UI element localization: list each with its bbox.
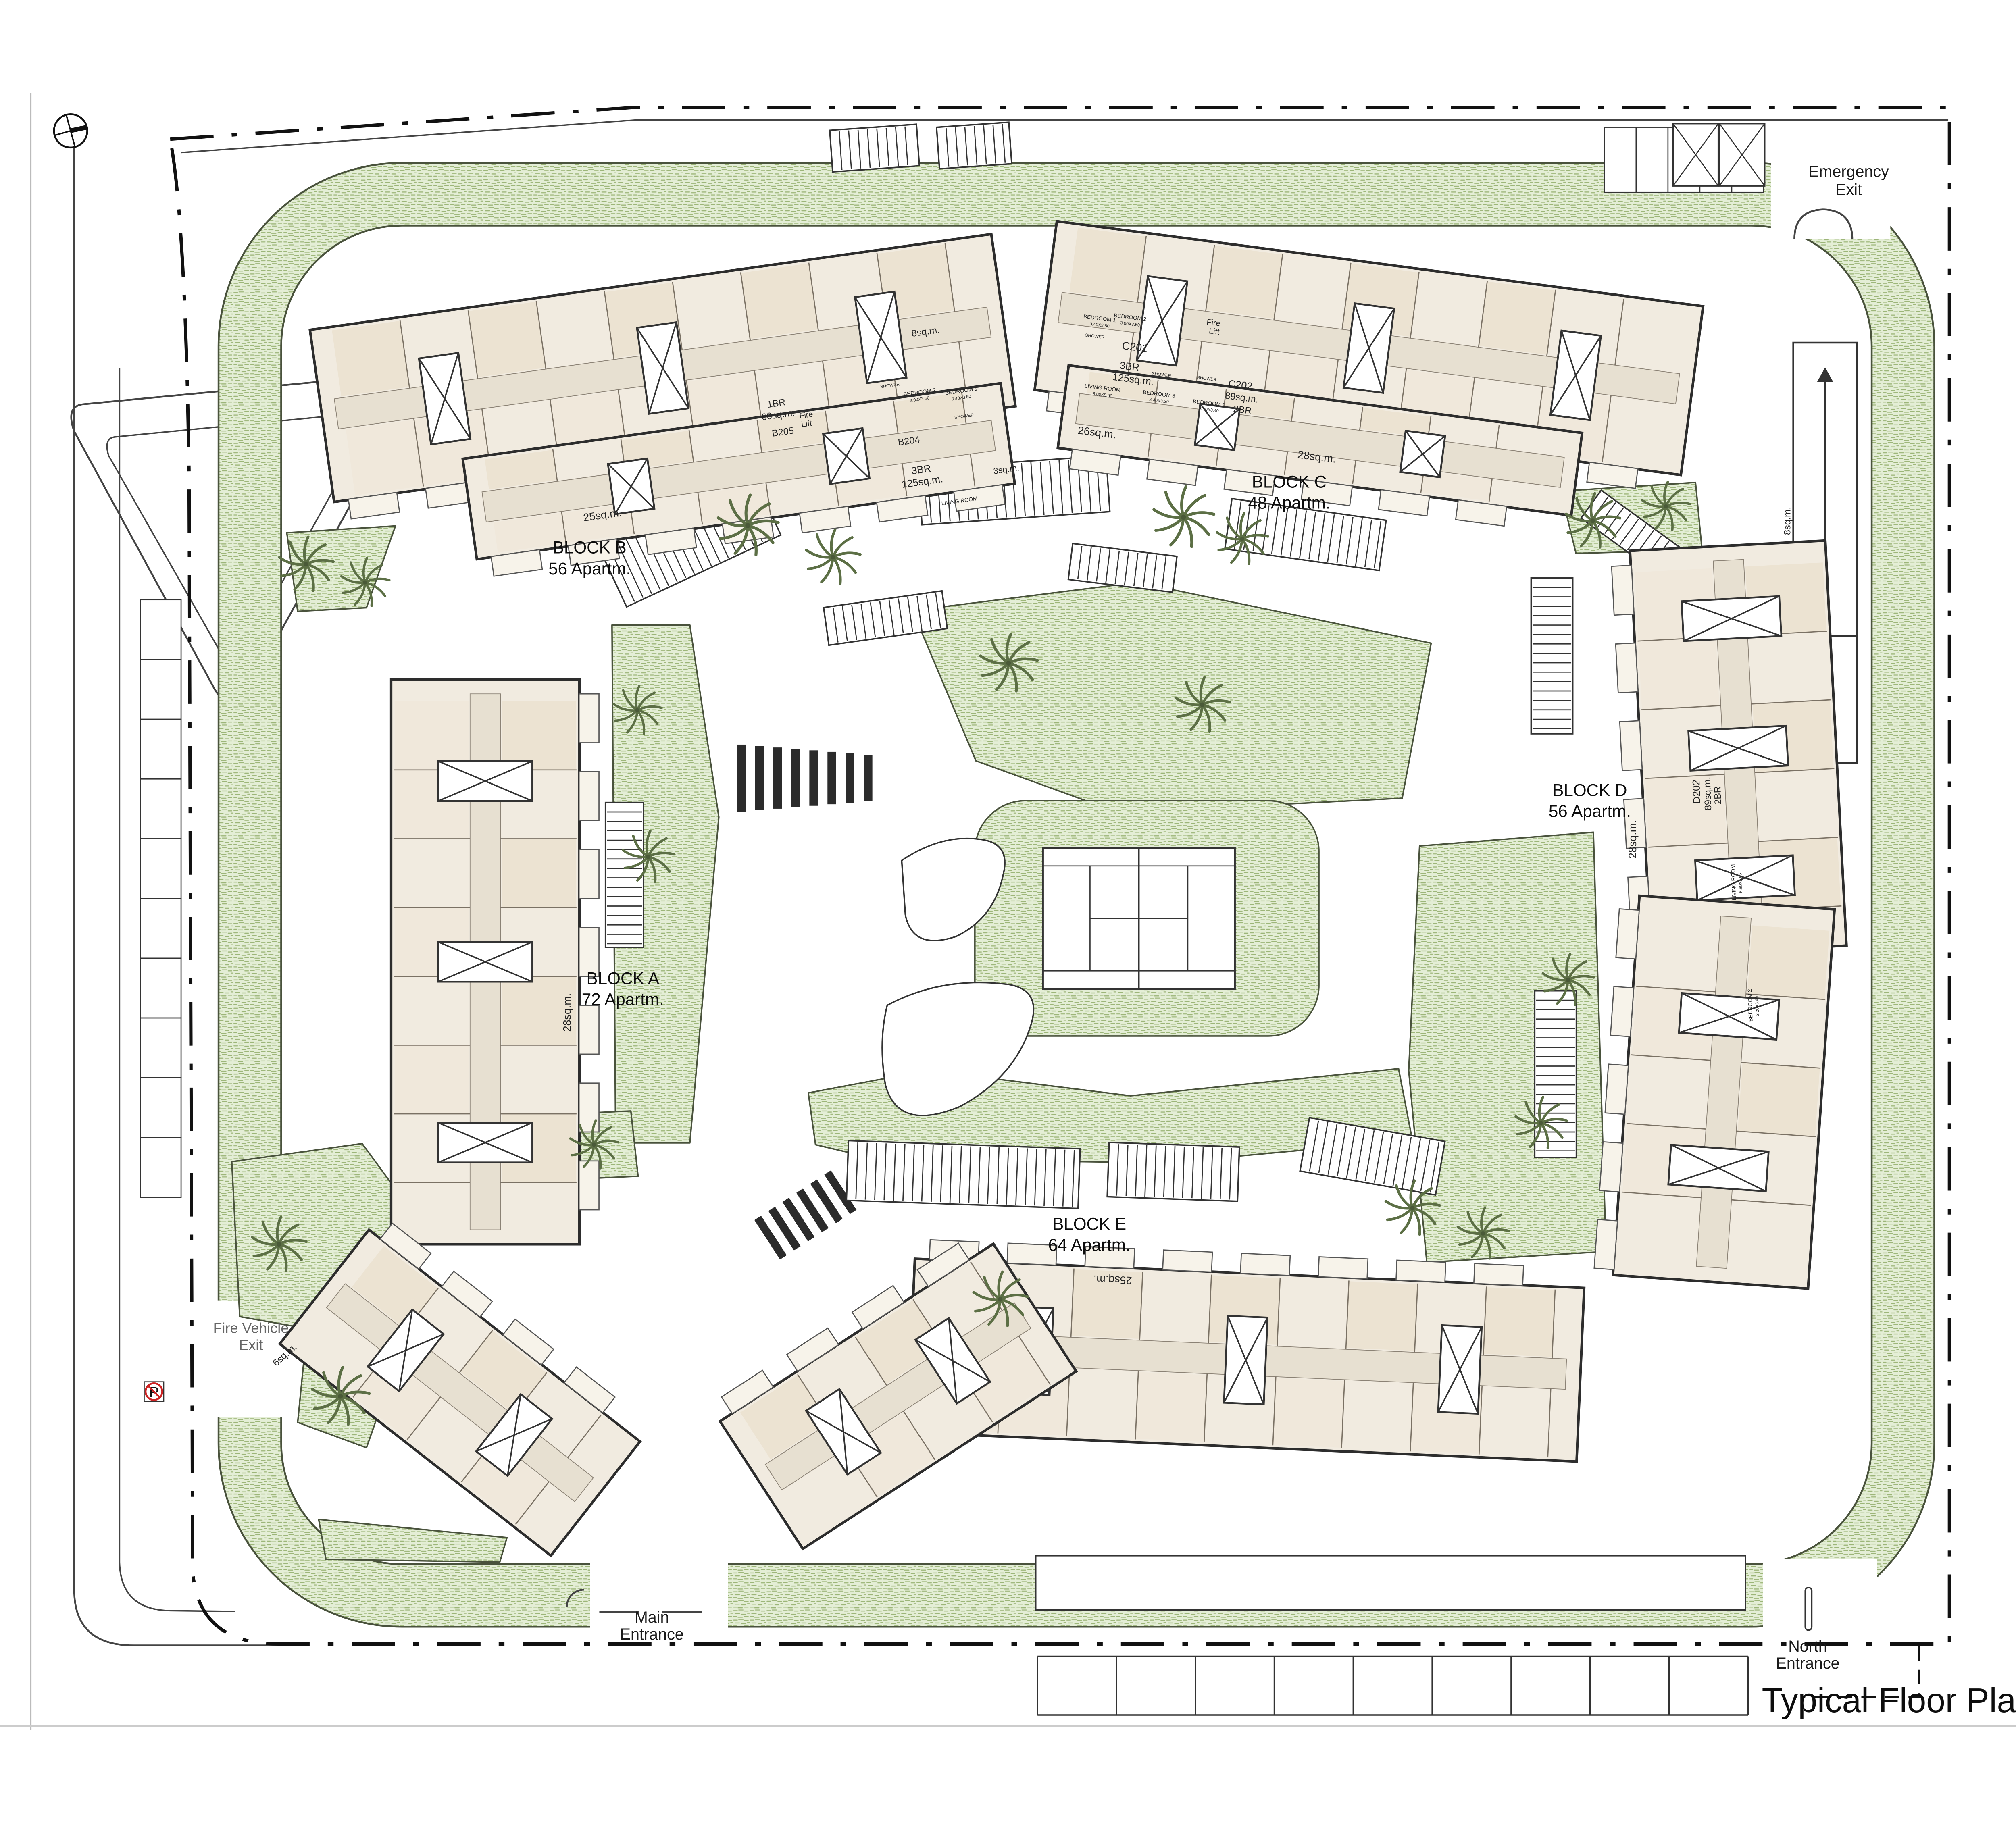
no-parking-icon: P [144, 1382, 164, 1402]
unit-area-label: D202 [1691, 779, 1703, 804]
block-apartment-count: 56 Apartm. [548, 559, 631, 578]
block-apartment-count: 48 Apartm. [1248, 493, 1330, 512]
unit-area-label: 6.60X5.85 [1738, 873, 1743, 893]
parking-stall [1604, 127, 1636, 193]
parking-stall [140, 958, 181, 1018]
crosswalk-bar [755, 746, 764, 810]
north-entrance-label-line2: Entrance [1776, 1654, 1840, 1672]
balcony [1620, 721, 1642, 771]
block-apartment-count: 56 Apartm. [1549, 802, 1631, 821]
unit-area-label: 2BR [1233, 404, 1252, 416]
crosswalk-bar [773, 747, 782, 809]
unit-area-label: LIVING ROOM [1730, 864, 1737, 900]
pergola-trellis [1535, 991, 1576, 1157]
drawing-title: Typical Floor Plan [1762, 1681, 2016, 1720]
parking-stall [140, 719, 181, 779]
balcony [579, 1005, 599, 1054]
crosswalk-bar [846, 753, 854, 803]
parking-stall [140, 1137, 181, 1197]
crosswalk-bar [791, 749, 800, 807]
unit-area-label: Fire [799, 410, 814, 421]
tennis-court [1043, 848, 1235, 989]
balcony [579, 772, 599, 820]
balcony [1163, 1250, 1212, 1272]
unit-area-label: 28sq.m. [1627, 820, 1639, 859]
balcony [579, 1161, 599, 1210]
site-plan-canvas: P Main Entrance North Entrance Emergency… [0, 0, 2016, 1823]
balcony [579, 1083, 599, 1132]
balcony [1396, 1260, 1445, 1282]
crosswalk-bar [809, 750, 818, 805]
crosswalk-bar [737, 745, 746, 812]
pergola-trellis [1531, 578, 1572, 734]
balcony [1241, 1253, 1290, 1276]
parking-stall [140, 839, 181, 898]
parking-stall [1636, 127, 1668, 193]
unit-area-label: Fire [1206, 318, 1220, 328]
pergola-trellis [937, 122, 1012, 169]
unit-area-label: Lift [1208, 327, 1220, 337]
block-apartment-count: 72 Apartm. [582, 990, 664, 1009]
fire-vehicle-exit-label-line2: Exit [239, 1337, 263, 1353]
typical-floor-plan-drawing: P Main Entrance North Entrance Emergency… [0, 0, 2016, 1823]
north-entrance-gate-post [1805, 1588, 1812, 1630]
survey-marker-icon [54, 114, 87, 148]
drop-off-strip [1036, 1556, 1745, 1610]
balcony [1594, 1219, 1618, 1269]
parking-stall [140, 1018, 181, 1078]
emergency-exit-label-line1: Emergency [1808, 163, 1889, 181]
block-apartment-count: 64 Apartm. [1048, 1236, 1131, 1255]
parking-stall [140, 660, 181, 719]
north-entrance-label-line1: North [1788, 1638, 1827, 1655]
balcony [1610, 986, 1634, 1036]
parking-stall [140, 899, 181, 958]
building-block [1611, 541, 1847, 957]
pergola-trellis [1107, 1142, 1239, 1201]
unit-area-label: 28sq.m. [561, 993, 573, 1032]
unit-area-label: 8sq.m. [1782, 507, 1792, 535]
fire-vehicle-exit-label-line1: Fire Vehicle [213, 1319, 289, 1336]
block-label: BLOCK B [553, 538, 627, 557]
parking-stall [140, 600, 181, 660]
unit-area-label: 3BR [1119, 360, 1140, 374]
pergola-trellis [830, 124, 919, 172]
main-entrance-label-line2: Entrance [620, 1625, 684, 1643]
balcony [579, 849, 599, 898]
balcony [1616, 909, 1639, 959]
north-entrance-gap [1763, 1559, 1877, 1632]
pergola-trellis [846, 1140, 1080, 1208]
block-label: BLOCK A [587, 969, 660, 988]
crosswalk-bar [827, 752, 836, 804]
unit-area-label: Lift [801, 419, 813, 429]
unit-area-label: 25sq.m. [1093, 1273, 1132, 1286]
unit-area-label: 2BR [1712, 786, 1723, 805]
unit-area-label: 3.20X3.40 [1755, 996, 1760, 1016]
unit-area-label: 89sq.m. [1702, 777, 1713, 811]
block-label: BLOCK D [1552, 780, 1627, 799]
balcony [579, 694, 599, 743]
parking-stall [140, 779, 181, 839]
block-label: BLOCK E [1052, 1214, 1126, 1233]
balcony [1474, 1263, 1523, 1286]
crosswalk-bar [864, 755, 873, 801]
balcony [1616, 643, 1638, 693]
unit-area-label: BEDROOM 2 [1747, 989, 1754, 1022]
parking-stall [140, 1078, 181, 1137]
building-block [391, 679, 599, 1244]
building-block [1594, 895, 1835, 1289]
main-entrance-label-line1: Main [635, 1609, 669, 1626]
emergency-exit-label-line2: Exit [1835, 181, 1862, 199]
pergola-trellis [606, 803, 644, 947]
balcony [1318, 1257, 1368, 1279]
balcony [1599, 1142, 1623, 1192]
balcony [1612, 565, 1634, 615]
block-label: BLOCK C [1252, 472, 1327, 491]
balcony [1605, 1064, 1629, 1114]
